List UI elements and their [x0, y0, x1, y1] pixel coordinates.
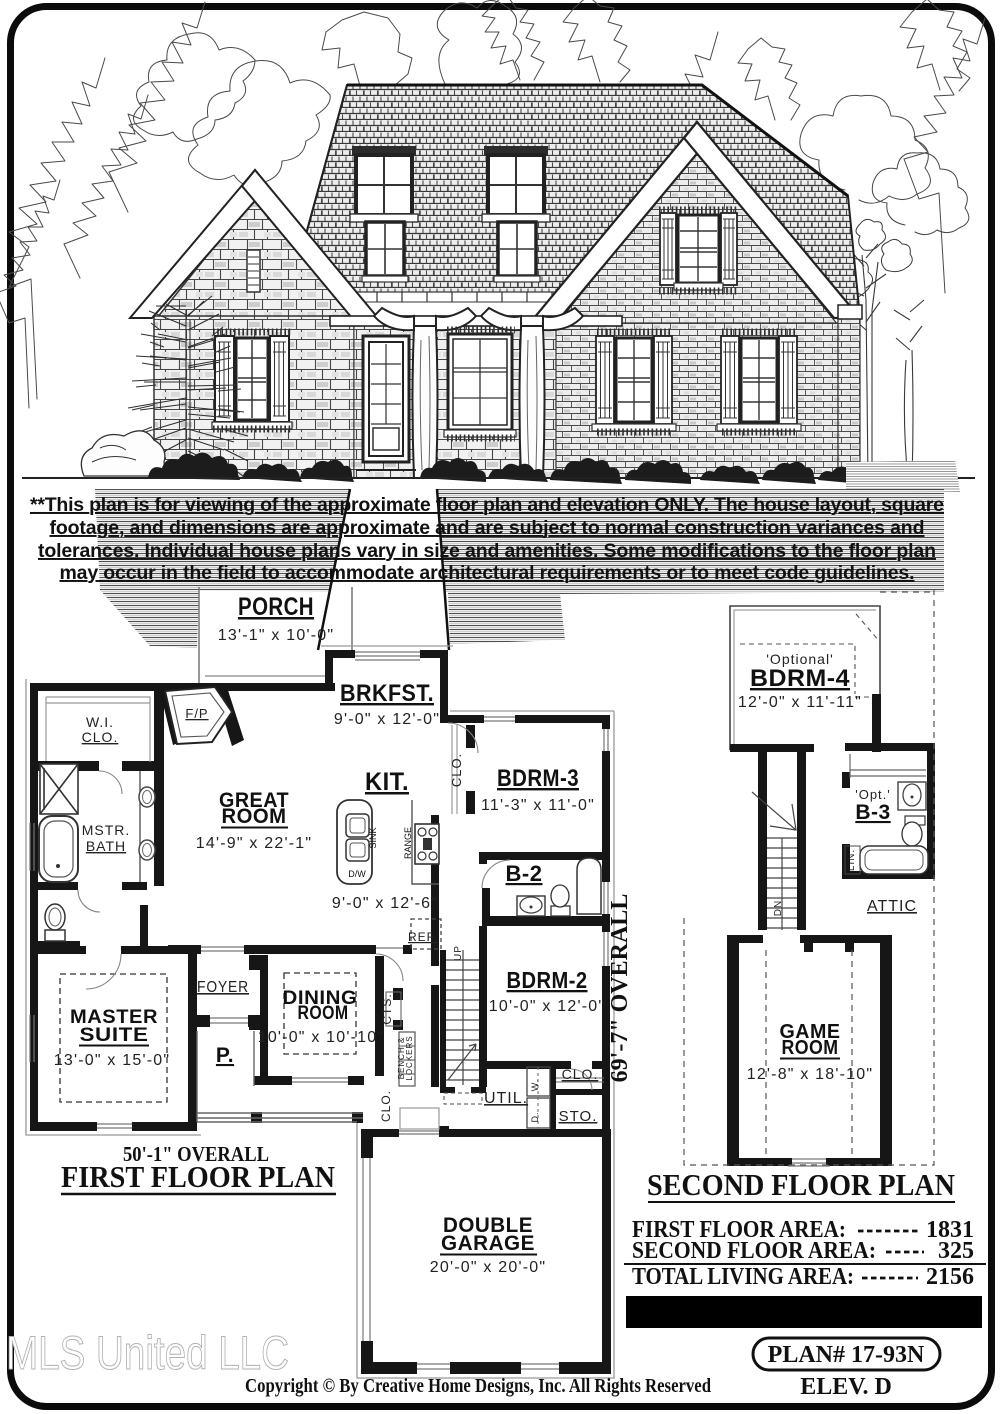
svg-text:CLO.: CLO. — [449, 753, 464, 787]
svg-text:TOTAL LIVING AREA:: TOTAL LIVING AREA: — [632, 1264, 854, 1290]
svg-text:B-3: B-3 — [855, 801, 890, 824]
svg-text:KIT.: KIT. — [365, 768, 409, 796]
svg-text:12'-0" x 11'-11": 12'-0" x 11'-11" — [738, 694, 862, 711]
svg-text:SUITE: SUITE — [80, 1025, 149, 1046]
svg-text:BRKFST.: BRKFST. — [340, 680, 434, 707]
svg-text:BDRM-4: BDRM-4 — [750, 665, 850, 692]
svg-text:LOCKERS: LOCKERS — [405, 1035, 414, 1080]
svg-text:W.I.: W.I. — [86, 714, 114, 730]
svg-text:UP: UP — [453, 945, 464, 961]
svg-text:FOYER: FOYER — [197, 979, 249, 996]
svg-text:SECOND FLOOR AREA:: SECOND FLOOR AREA: — [632, 1238, 876, 1264]
svg-text:69'-7" OVERALL: 69'-7" OVERALL — [607, 894, 633, 1083]
svg-text:**This plan is for viewing of: **This plan is for viewing of the approx… — [30, 494, 944, 516]
svg-text:ROOM: ROOM — [222, 805, 287, 828]
svg-text:CLO.: CLO. — [562, 1066, 599, 1082]
svg-text:ROOM: ROOM — [782, 1037, 839, 1059]
svg-text:REF.: REF. — [408, 930, 438, 944]
svg-text:13'-0" x 15'-0": 13'-0" x 15'-0" — [54, 1052, 170, 1069]
svg-text:CTS.: CTS. — [380, 993, 394, 1024]
svg-text:SINK: SINK — [368, 827, 378, 848]
svg-text:ATTIC: ATTIC — [867, 898, 917, 915]
svg-text:may occur in the field to acco: may occur in the field to accommodate ar… — [60, 562, 915, 584]
svg-text:CLO.: CLO. — [379, 1090, 393, 1122]
svg-text:W.: W. — [530, 1079, 540, 1092]
svg-text:12'-8" x 18'-10": 12'-8" x 18'-10" — [747, 1066, 874, 1083]
svg-text:UTIL.: UTIL. — [484, 1090, 528, 1107]
svg-text:9'-0" x 12'-0": 9'-0" x 12'-0" — [334, 711, 440, 728]
svg-text:footage, and dimensions are ap: footage, and dimensions are approximate … — [50, 517, 925, 539]
svg-text:10'-0" x 10'-10": 10'-0" x 10'-10" — [258, 1029, 385, 1046]
svg-text:F/P: F/P — [185, 706, 208, 721]
svg-text:B-2: B-2 — [506, 861, 543, 886]
svg-text:CLO.: CLO. — [82, 729, 119, 745]
svg-text:2156: 2156 — [926, 1264, 974, 1290]
svg-text:PORCH: PORCH — [238, 593, 314, 621]
svg-text:14'-9" x 22'-1": 14'-9" x 22'-1" — [196, 835, 312, 852]
svg-text:13'-1" x 10'-0": 13'-1" x 10'-0" — [218, 627, 334, 644]
svg-text:PLAN# 17-93N: PLAN# 17-93N — [768, 1342, 925, 1368]
svg-text:STO.: STO. — [559, 1108, 598, 1125]
svg-text:ELEV. D: ELEV. D — [800, 1374, 892, 1400]
svg-text:FIRST FLOOR PLAN: FIRST FLOOR PLAN — [61, 1159, 335, 1194]
svg-text:BATH: BATH — [86, 838, 126, 854]
svg-text:Copyright © By Creative Home D: Copyright © By Creative Home Designs, In… — [245, 1376, 711, 1397]
svg-text:MLS United LLC: MLS United LLC — [6, 1326, 289, 1379]
svg-text:BDRM-2: BDRM-2 — [507, 967, 588, 993]
svg-text:'Opt.': 'Opt.' — [855, 787, 891, 802]
svg-text:tolerances. Individual house p: tolerances. Individual house plans vary … — [38, 540, 936, 562]
svg-text:LIN.: LIN. — [846, 849, 857, 871]
svg-text:ROOM: ROOM — [298, 1003, 349, 1024]
svg-text:BDRM-3: BDRM-3 — [497, 765, 579, 792]
svg-text:9'-0" x 12'-6": 9'-0" x 12'-6" — [332, 895, 438, 912]
svg-text:11'-3" x 11'-0": 11'-3" x 11'-0" — [481, 797, 595, 814]
svg-text:325: 325 — [938, 1238, 974, 1264]
svg-text:P.: P. — [216, 1044, 234, 1067]
svg-text:10'-0" x 12'-0": 10'-0" x 12'-0" — [489, 998, 605, 1015]
svg-text:SECOND FLOOR PLAN: SECOND FLOOR PLAN — [647, 1167, 955, 1202]
svg-text:D/W: D/W — [348, 869, 366, 879]
svg-text:DN: DN — [773, 900, 784, 916]
svg-text:20'-0" x 20'-0": 20'-0" x 20'-0" — [430, 1259, 546, 1276]
svg-text:GARAGE: GARAGE — [441, 1232, 535, 1255]
svg-text:MSTR.: MSTR. — [82, 822, 131, 838]
svg-text:D.: D. — [530, 1112, 540, 1123]
